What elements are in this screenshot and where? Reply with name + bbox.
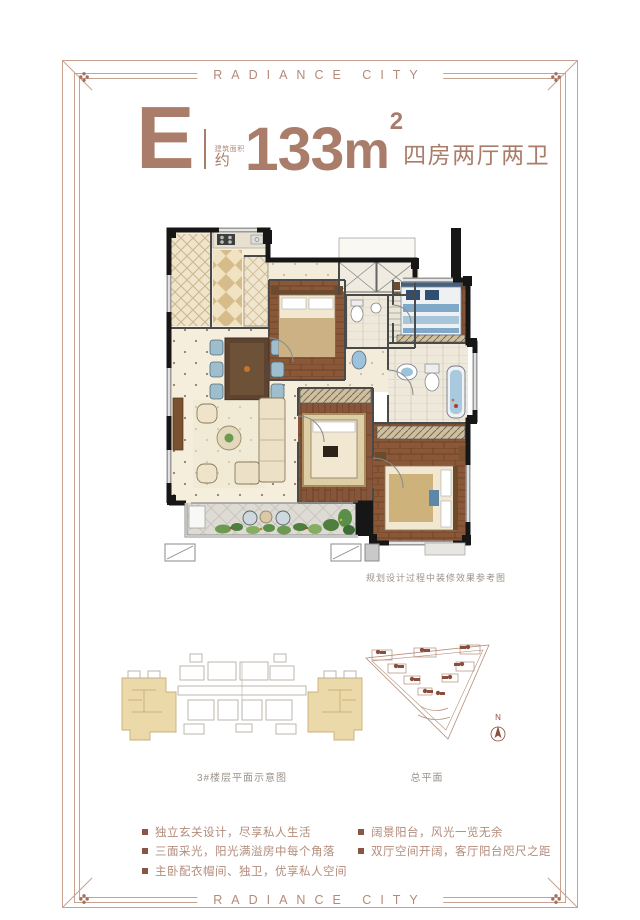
sink-icon xyxy=(251,235,263,244)
title-divider xyxy=(204,129,206,169)
floor-plan xyxy=(163,220,497,568)
toilet-icon xyxy=(351,306,363,322)
bedroom-2-furniture xyxy=(271,286,343,357)
patio-table-icon xyxy=(260,511,272,523)
poster-page: { "header": { "brand": "RADIANCE CITY" }… xyxy=(0,0,640,920)
feature-text: 三面采光，阳光满溢房中每个角落 xyxy=(155,843,335,859)
feature-list-right: 阔景阳台，风光一览无余 双厅空间开阔，客厅阳台咫尺之距 xyxy=(358,822,551,861)
feature-list-left: 独立玄关设计，尽享私人生活 三面采光，阳光满溢房中每个角落 主卧配衣帽间、独卫，… xyxy=(142,822,347,881)
stove-icon xyxy=(217,234,235,245)
armchair-icon xyxy=(197,464,217,483)
bullet-square-icon xyxy=(142,848,148,854)
feature-item: 主卧配衣帽间、独卫，优享私人空间 xyxy=(142,861,347,881)
site-plan-caption: 总平面 xyxy=(362,769,492,784)
brand-header: RADIANCE CITY xyxy=(197,68,443,82)
bullet-square-icon xyxy=(358,848,364,854)
wardrobe-icon xyxy=(300,388,371,403)
building-plan-caption: 3#楼层平面示意图 xyxy=(118,769,366,784)
area-unit: m xyxy=(343,132,389,172)
feature-item: 双厅空间开阔，客厅阳台咫尺之距 xyxy=(358,842,551,862)
washbasin-icon xyxy=(371,303,381,313)
armchair-icon xyxy=(197,404,217,423)
bullet-square-icon xyxy=(358,829,364,835)
unit-letter: E xyxy=(136,105,193,172)
bullet-square-icon xyxy=(142,868,148,874)
room-count-label: 四房两厅两卫 xyxy=(403,136,550,170)
north-label: N xyxy=(495,713,501,722)
floorplan-caption: 规划设计过程中装修效果参考图 xyxy=(300,571,506,584)
brand-footer: RADIANCE CITY xyxy=(197,893,443,907)
bedroom-4-furniture xyxy=(300,388,371,486)
bedroom-3-furniture xyxy=(393,282,468,342)
toilet-icon xyxy=(425,373,439,391)
area-exponent: 2 xyxy=(390,108,403,136)
wardrobe-icon xyxy=(397,335,465,342)
area-value: 133 xyxy=(245,126,344,172)
feature-item: 三面采光，阳光满溢房中每个角落 xyxy=(142,842,347,862)
feature-text: 双厅空间开阔，客厅阳台咫尺之距 xyxy=(371,843,551,859)
north-compass-icon: N xyxy=(491,713,505,741)
building-plan-diagram xyxy=(118,650,366,758)
unit-title: E 建筑面积 约 133 m 2 四房两厅两卫 xyxy=(136,102,550,172)
feature-text: 主卧配衣帽间、独卫，优享私人空间 xyxy=(155,863,347,879)
tv-cabinet-icon xyxy=(173,398,183,450)
feature-item: 独立玄关设计，尽享私人生活 xyxy=(142,822,347,842)
vanity-sink-icon xyxy=(352,351,366,369)
bullet-square-icon xyxy=(142,829,148,835)
feature-text: 独立玄关设计，尽享私人生活 xyxy=(155,824,311,840)
dining-set xyxy=(210,338,284,400)
detail-callouts xyxy=(165,543,465,561)
feature-item: 阔景阳台，风光一览无余 xyxy=(358,822,551,842)
feature-text: 阔景阳台，风光一览无余 xyxy=(371,824,503,840)
wardrobe-icon xyxy=(377,426,465,439)
site-plan-diagram: N xyxy=(362,642,512,762)
patio-chair-icon xyxy=(243,511,257,525)
area-approx: 约 xyxy=(215,153,230,170)
area-label: 建筑面积 xyxy=(215,146,245,153)
patio-chair-icon xyxy=(276,511,290,525)
site-buildings xyxy=(372,645,480,695)
kitchen-area xyxy=(213,232,269,326)
